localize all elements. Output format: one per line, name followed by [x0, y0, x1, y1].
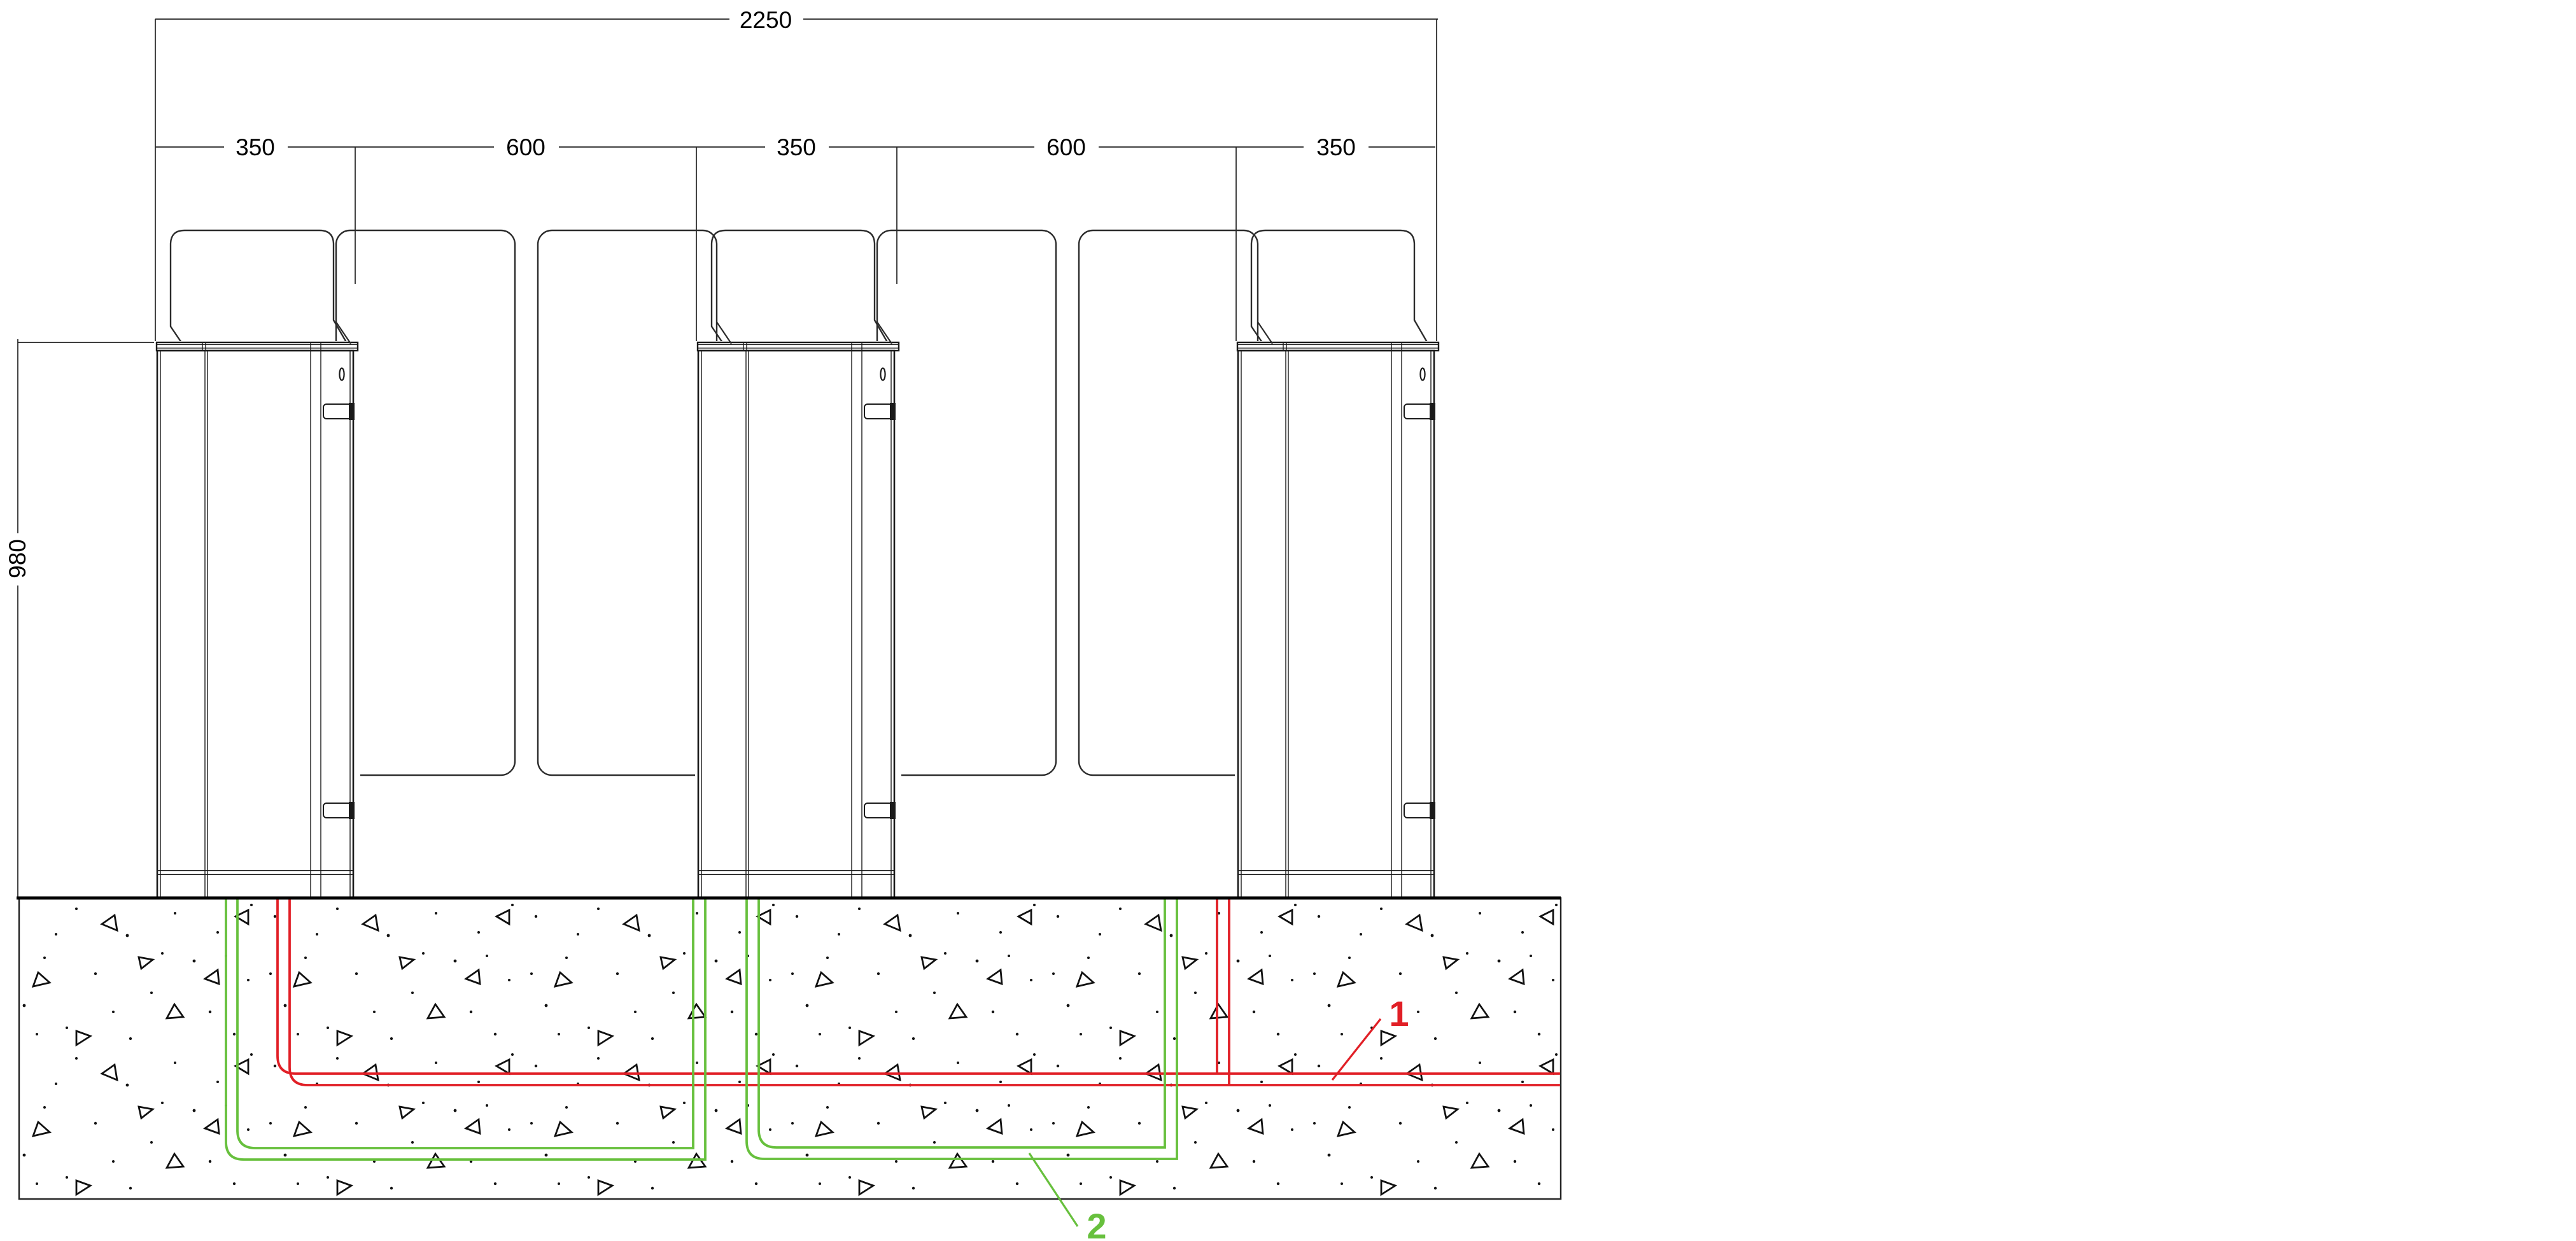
drawing-canvas: 2250 350 600 350 600 350 980	[0, 0, 2576, 1241]
callout-1-label: 1	[1389, 993, 1409, 1034]
segment-dimension-label-4: 600	[1046, 134, 1086, 160]
callout-2-label: 2	[1087, 1206, 1106, 1241]
glass-wing-panel-lane1-right	[538, 230, 717, 775]
segment-dimension-label-2: 600	[506, 134, 545, 160]
glass-panel-over-cabinet-1	[171, 230, 348, 344]
glass-wing-panel-lane1-left	[336, 230, 515, 775]
concrete-foundation	[19, 898, 1561, 1199]
glass-chamfer-lines	[336, 322, 1272, 344]
height-dimension-label: 980	[4, 539, 31, 578]
glass-wing-panel-lane2-right	[1079, 230, 1258, 775]
glass-panel-over-cabinet-3	[1251, 230, 1428, 344]
turnstile-installation-drawing: 2250 350 600 350 600 350 980	[0, 0, 2576, 1241]
segment-dimension-label-3: 350	[777, 134, 816, 160]
glass-wing-panel-lane2-left	[877, 230, 1056, 775]
total-width-dimension-label: 2250	[740, 7, 792, 33]
turnstile-cabinet-2	[695, 341, 901, 898]
turnstile-cabinet-1	[154, 341, 360, 898]
glass-panel-over-cabinet-2	[712, 230, 889, 344]
turnstile-cabinets	[154, 341, 1441, 898]
segment-dimension-label-5: 350	[1316, 134, 1356, 160]
segment-dimension-label-1: 350	[236, 134, 275, 160]
turnstile-cabinet-3	[1235, 341, 1441, 898]
